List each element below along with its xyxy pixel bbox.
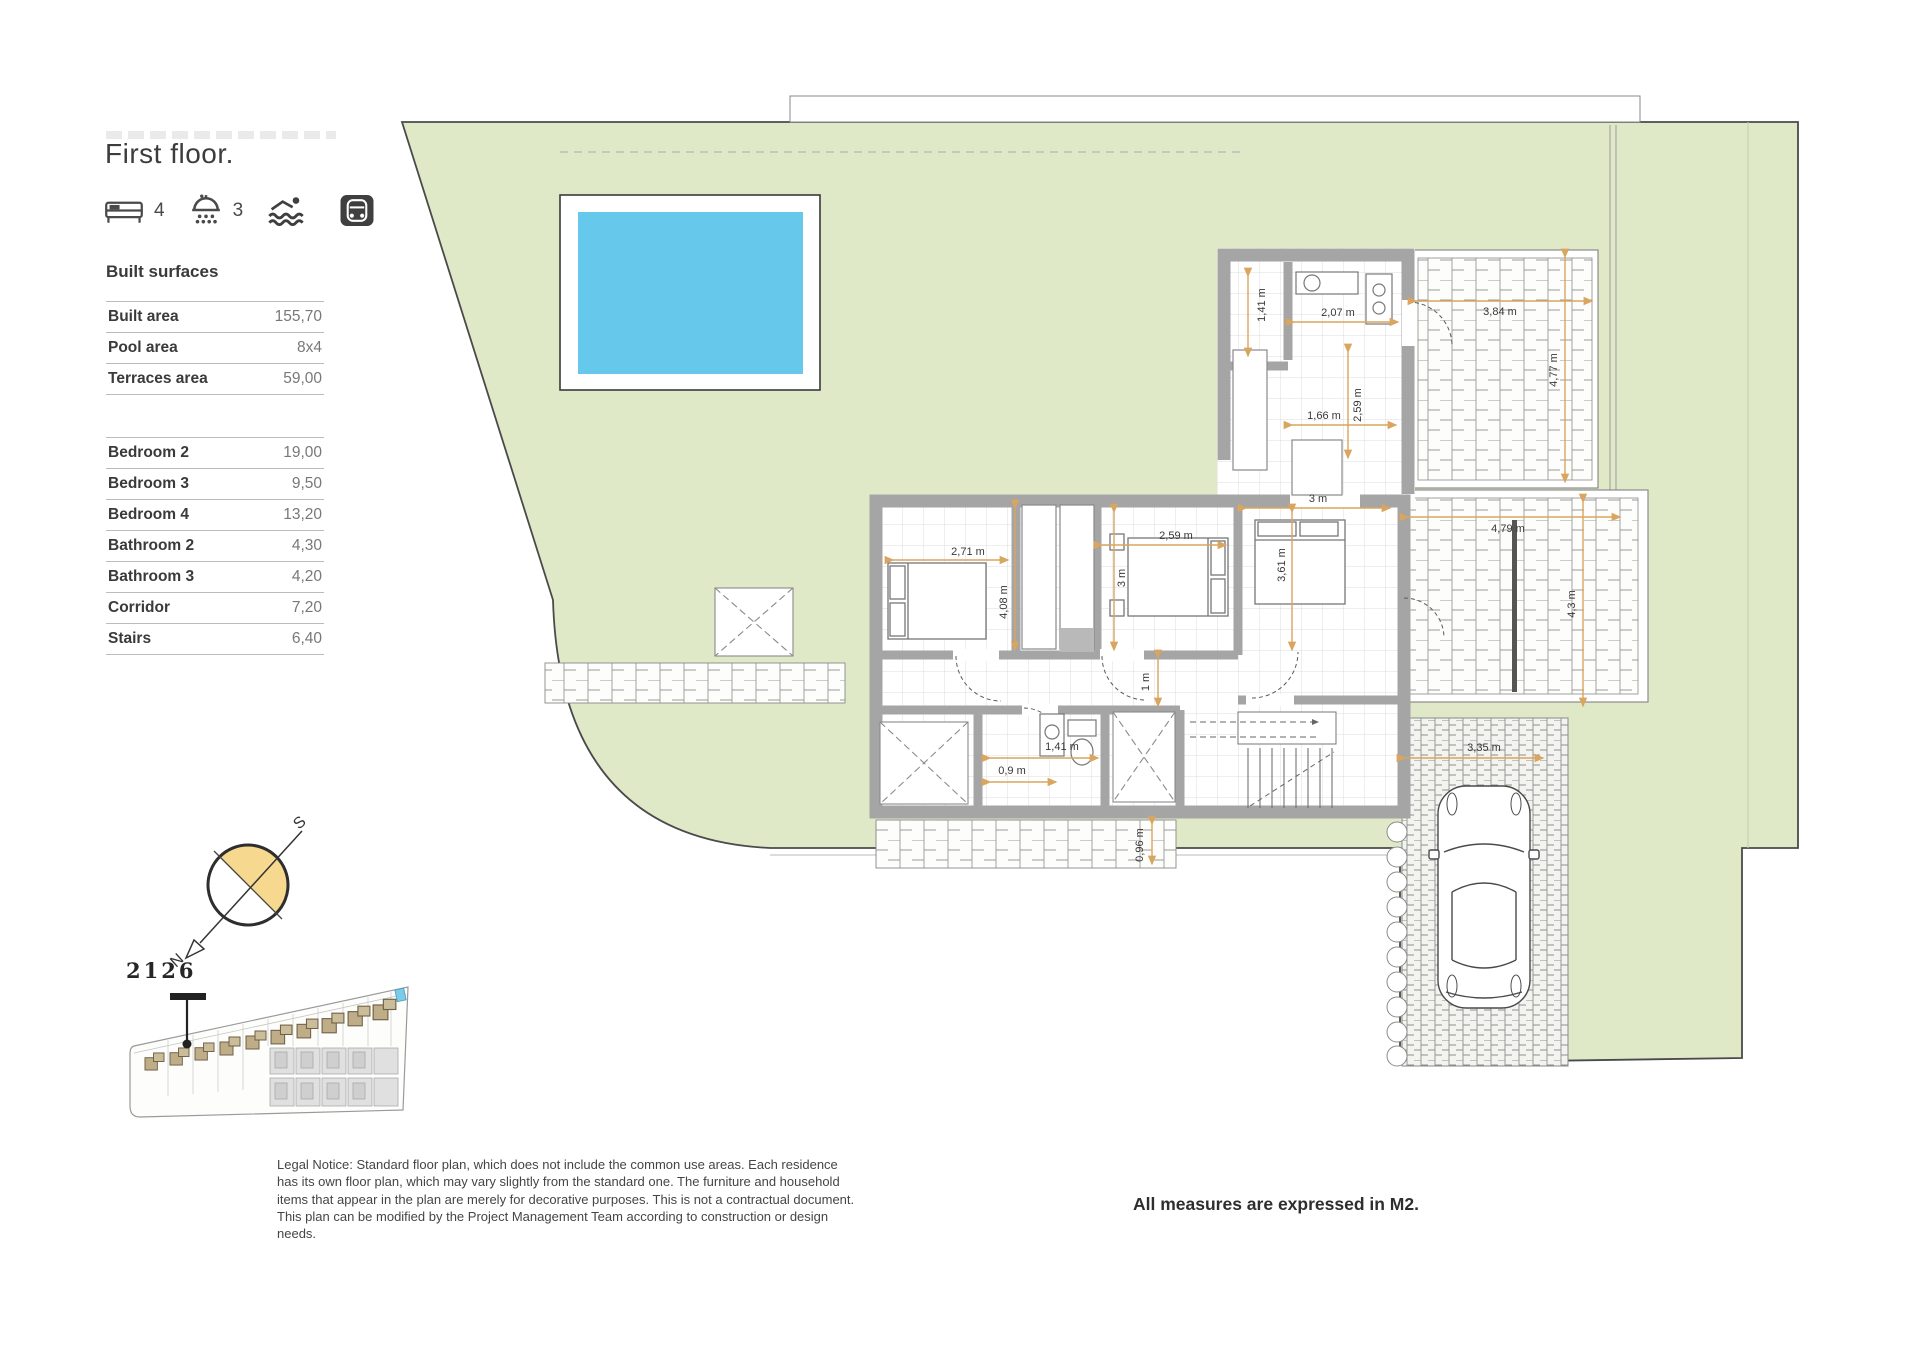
walkway-bottom [876, 820, 1176, 868]
plot-step-boundary [790, 96, 1640, 122]
car [1429, 786, 1539, 1008]
compass: S N [167, 813, 309, 971]
north-arrow [186, 940, 204, 958]
site-plan [130, 987, 408, 1117]
table-row: Bathroom 3 4,20 [106, 562, 324, 593]
table-row: Built area 155,70 [106, 302, 324, 333]
table-row: Pool area 8x4 [106, 333, 324, 364]
shower-icon [189, 194, 223, 227]
page-title: First floor. [105, 138, 234, 170]
terrace-right [1402, 490, 1648, 702]
bedroom-count: 4 [154, 200, 165, 222]
bed-icon [104, 196, 144, 225]
swimming-pool [560, 195, 820, 390]
compass-south-label: S [290, 813, 309, 833]
bathroom-count: 3 [233, 200, 244, 222]
table-row: Terraces area 59,00 [106, 364, 324, 395]
built-surfaces-heading: Built surfaces [106, 262, 218, 282]
pool-icon [267, 195, 305, 226]
walkway-left [545, 663, 845, 703]
legal-notice: Legal Notice: Standard floor plan, which… [277, 1156, 859, 1242]
table-row: Bathroom 2 4,30 [106, 531, 324, 562]
unit-number: 2126 [126, 958, 196, 983]
table-row: Bedroom 4 13,20 [106, 500, 324, 531]
table-row: Bedroom 3 9,50 [106, 469, 324, 500]
built-surfaces-table: Built area 155,70 Pool area 8x4 Terraces… [106, 301, 324, 395]
site-pool-dot [395, 988, 406, 1002]
garage-icon [339, 194, 375, 227]
terrace-top [1412, 250, 1598, 488]
measures-note: All measures are expressed in M2. [1133, 1194, 1419, 1215]
floor-plan-sheet: S N [0, 0, 1920, 1357]
feature-icons: 4 3 [104, 194, 375, 227]
table-row: Bedroom 2 19,00 [106, 438, 324, 469]
table-row: Stairs 6,40 [106, 624, 324, 655]
room-surfaces-table: Bedroom 2 19,00 Bedroom 3 9,50 Bedroom 4… [106, 437, 324, 655]
pergola-beam [1512, 520, 1517, 692]
table-row: Corridor 7,20 [106, 593, 324, 624]
